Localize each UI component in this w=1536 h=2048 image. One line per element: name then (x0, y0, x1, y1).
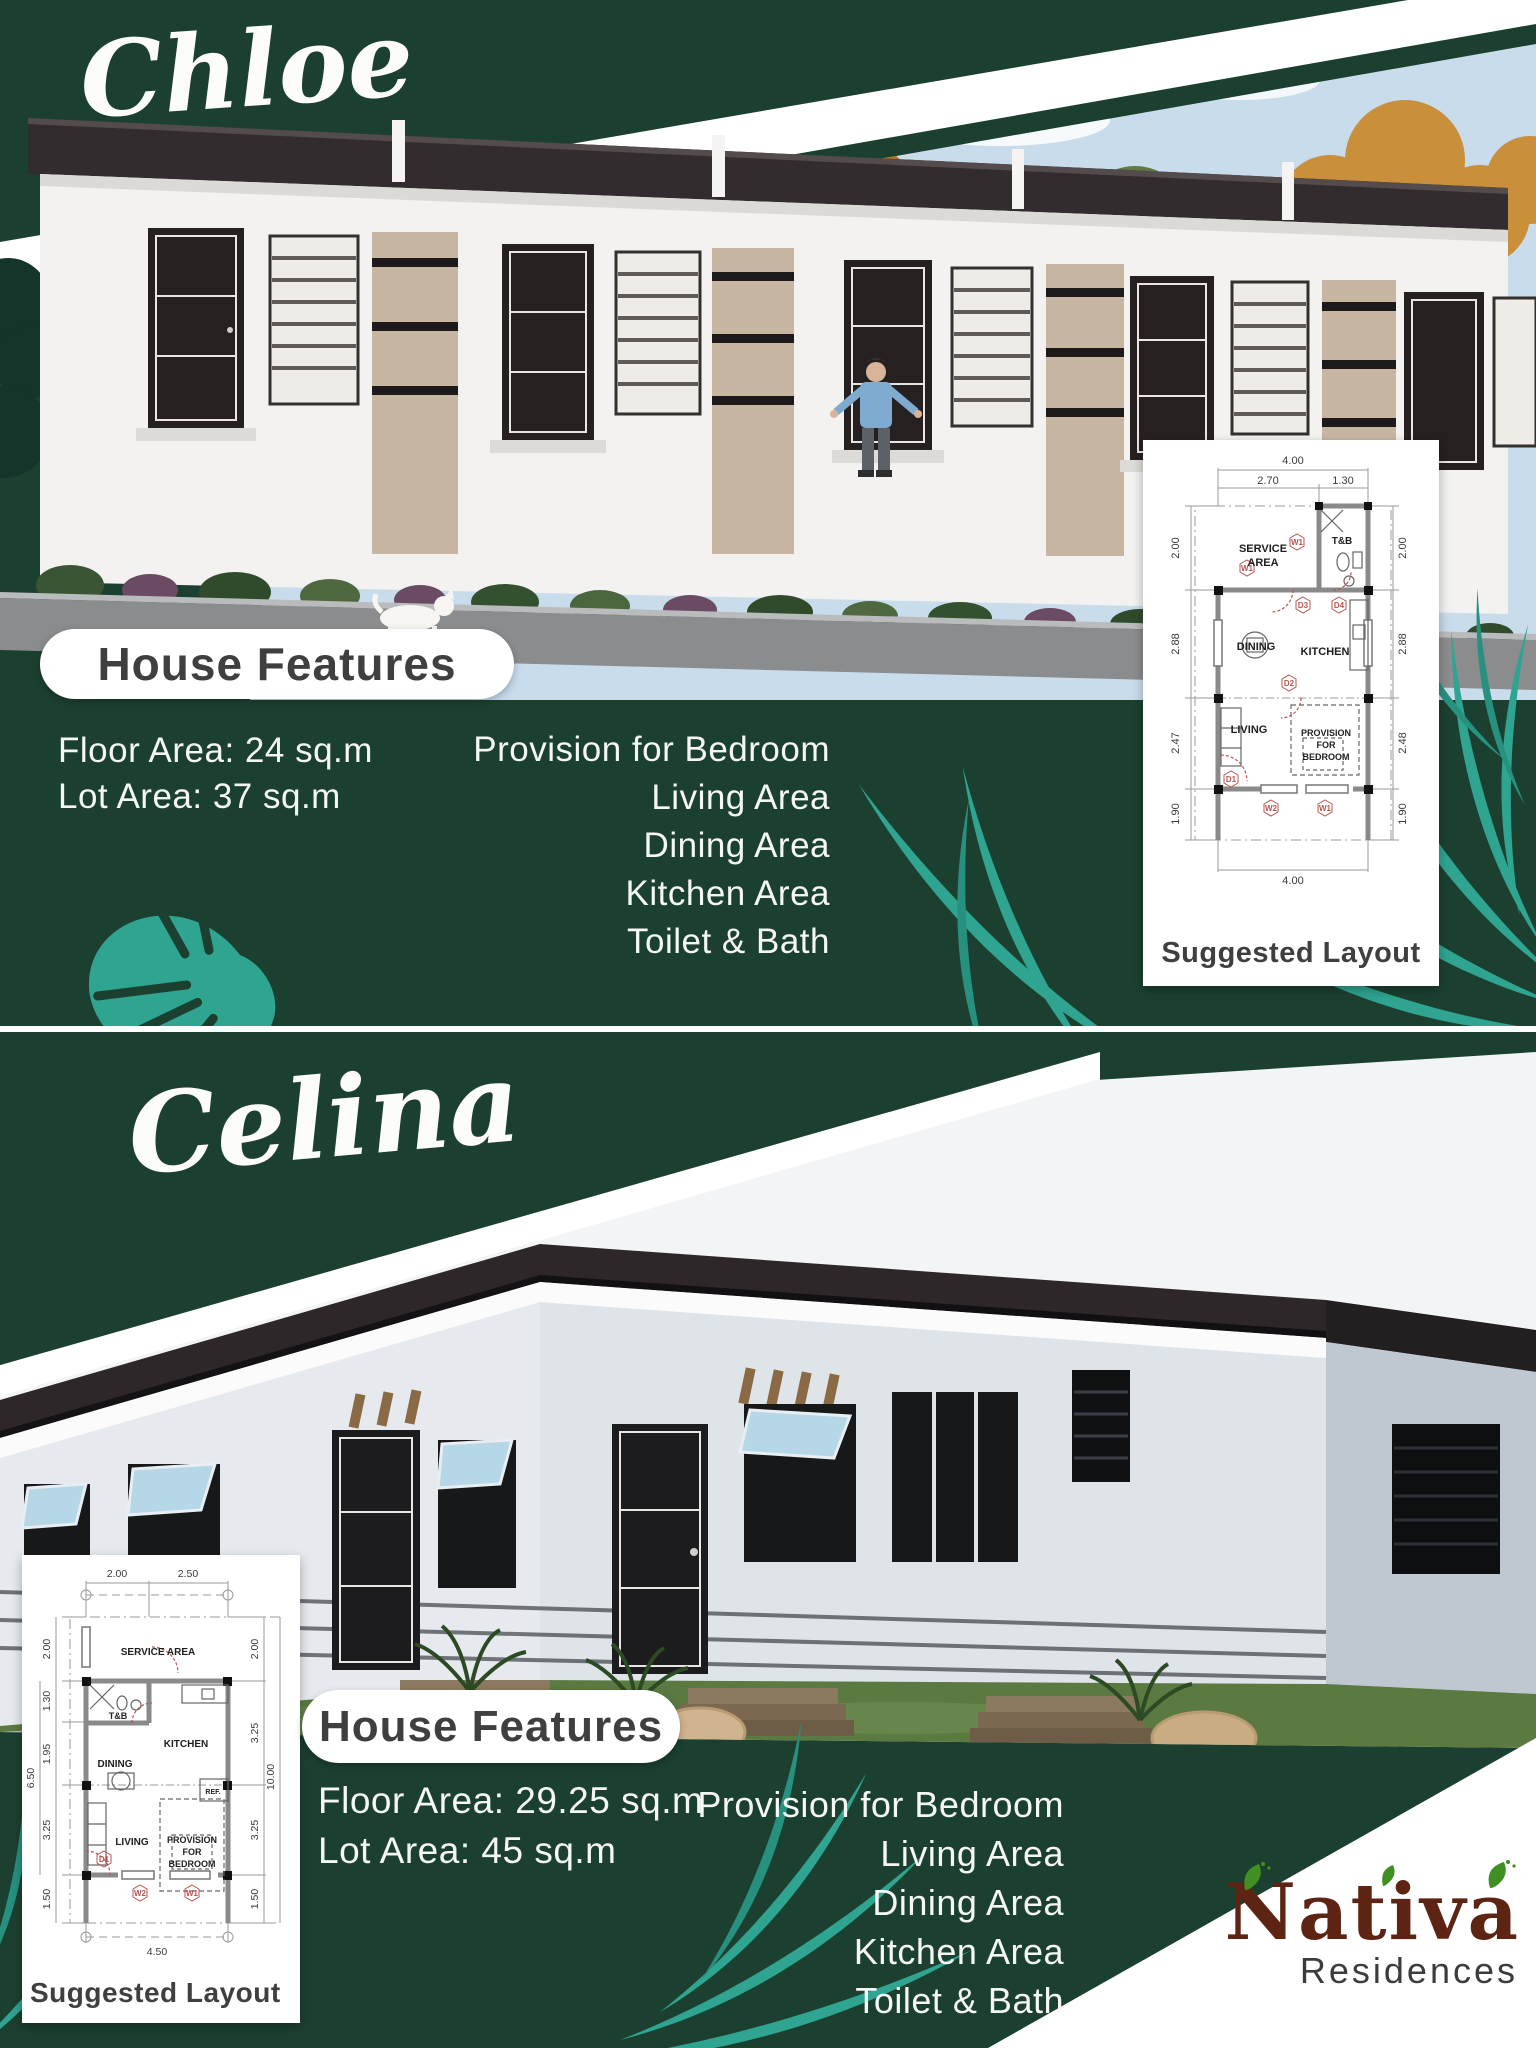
celina-title: Celina (124, 1047, 524, 1191)
leaf-icon (1239, 1860, 1283, 1894)
celina-floor-area: Floor Area: 29.25 sq.m (318, 1776, 703, 1826)
leaf-icon (1375, 1862, 1411, 1890)
svg-text:T&B: T&B (109, 1711, 128, 1721)
svg-text:D3: D3 (1298, 601, 1309, 610)
dimension-labels: 2.00 2.50 2.00 1.30 1.95 6.50 3.25 1.50 … (25, 1568, 277, 1958)
svg-text:2.88: 2.88 (1397, 633, 1409, 654)
svg-text:4.00: 4.00 (1282, 875, 1303, 887)
svg-text:4.50: 4.50 (147, 1946, 168, 1958)
celina-features-heading: House Features (319, 1702, 663, 1752)
provision-item: Dining Area (420, 822, 830, 870)
svg-text:BEDROOM: BEDROOM (1303, 752, 1350, 762)
svg-text:2.50: 2.50 (178, 1568, 199, 1580)
celina-features-pill: House Features (302, 1690, 680, 1763)
chloe-features-heading: House Features (97, 637, 456, 691)
svg-text:T&B: T&B (1332, 536, 1353, 547)
svg-text:1.90: 1.90 (1397, 803, 1409, 824)
svg-text:2.70: 2.70 (1257, 475, 1278, 487)
walls (86, 1681, 228, 1923)
svg-text:1.30: 1.30 (1332, 475, 1353, 487)
svg-text:SERVICE: SERVICE (1239, 543, 1287, 555)
svg-text:W1: W1 (186, 1889, 199, 1898)
svg-text:3.25: 3.25 (41, 1820, 53, 1841)
chloe-provisions: Provision for Bedroom Living Area Dining… (420, 726, 830, 966)
provision-item: Kitchen Area (660, 1927, 1064, 1976)
svg-text:W1: W1 (1291, 538, 1304, 547)
svg-text:LIVING: LIVING (115, 1837, 149, 1848)
celina-lot-area: Lot Area: 45 sq.m (318, 1826, 703, 1876)
celina-section: Celina (0, 1032, 1536, 2048)
svg-text:1.90: 1.90 (1170, 803, 1182, 824)
provision-item: Provision for Bedroom (660, 1780, 1064, 1829)
svg-text:PROVISION: PROVISION (167, 1835, 217, 1845)
svg-text:SERVICE AREA: SERVICE AREA (121, 1647, 195, 1658)
svg-text:1.50: 1.50 (249, 1889, 261, 1910)
svg-text:W2: W2 (1265, 804, 1278, 813)
svg-text:2.00: 2.00 (107, 1568, 128, 1580)
svg-text:DINING: DINING (1237, 641, 1276, 653)
ref-label: REF. (205, 1789, 220, 1796)
svg-text:FOR: FOR (183, 1847, 202, 1857)
provision-item: Living Area (420, 774, 830, 822)
flyer-poster: Chloe House Features Floor Area: 24 sq.m… (0, 0, 1536, 2048)
chloe-floor-area: Floor Area: 24 sq.m (58, 728, 373, 774)
svg-text:D2: D2 (1284, 679, 1295, 688)
dimension-labels: 4.00 2.70 1.30 2.00 2.88 2.47 1.90 2.00 … (1170, 455, 1409, 887)
svg-text:AREA: AREA (1247, 557, 1278, 569)
chloe-title: Chloe (77, 6, 417, 133)
svg-text:2.00: 2.00 (249, 1639, 261, 1660)
chloe-areas: Floor Area: 24 sq.m Lot Area: 37 sq.m (58, 728, 373, 820)
celina-plan-card: 2.00 2.50 2.00 1.30 1.95 6.50 3.25 1.50 … (22, 1555, 300, 2023)
svg-text:4.00: 4.00 (1282, 455, 1303, 467)
celina-provisions: Provision for Bedroom Living Area Dining… (660, 1780, 1064, 2025)
dimension-lines (40, 1581, 280, 1943)
svg-text:1.50: 1.50 (41, 1889, 53, 1910)
svg-text:D1: D1 (1226, 775, 1237, 784)
provision-item: Toilet & Bath (420, 918, 830, 966)
chloe-floor-plan: 4.00 2.70 1.30 2.00 2.88 2.47 1.90 2.00 … (1143, 440, 1439, 910)
svg-text:1.30: 1.30 (41, 1691, 53, 1712)
celina-floor-plan: 2.00 2.50 2.00 1.30 1.95 6.50 3.25 1.50 … (22, 1555, 300, 1963)
provision-item: Toilet & Bath (660, 1976, 1064, 2025)
chloe-features-pill: House Features (40, 629, 514, 699)
svg-text:2.00: 2.00 (1170, 537, 1182, 558)
svg-text:W2: W2 (134, 1889, 147, 1898)
svg-text:FOR: FOR (1317, 740, 1336, 750)
chloe-plan-card: 4.00 2.70 1.30 2.00 2.88 2.47 1.90 2.00 … (1143, 440, 1439, 986)
plan-markers: W1 W1 D3 D4 D2 D1 W2 W1 (1224, 534, 1346, 816)
chloe-lot-area: Lot Area: 37 sq.m (58, 774, 373, 820)
svg-text:W1: W1 (1319, 804, 1332, 813)
svg-text:10.00: 10.00 (265, 1764, 277, 1790)
svg-text:KITCHEN: KITCHEN (164, 1739, 208, 1750)
svg-text:2.48: 2.48 (1397, 732, 1409, 753)
svg-text:6.50: 6.50 (25, 1768, 37, 1789)
svg-text:LIVING: LIVING (1231, 724, 1268, 736)
svg-text:D4: D4 (1334, 601, 1345, 610)
svg-text:D1: D1 (99, 1855, 110, 1864)
chloe-layout-caption: Suggested Layout (1143, 937, 1439, 970)
svg-text:PROVISION: PROVISION (1301, 728, 1351, 738)
provision-item: Living Area (660, 1829, 1064, 1878)
svg-text:2.88: 2.88 (1170, 633, 1182, 654)
chloe-section: Chloe House Features Floor Area: 24 sq.m… (0, 0, 1536, 1032)
svg-text:2.00: 2.00 (1397, 537, 1409, 558)
svg-text:BEDROOM: BEDROOM (169, 1859, 216, 1869)
svg-text:3.25: 3.25 (249, 1820, 261, 1841)
provision-item: Dining Area (660, 1878, 1064, 1927)
svg-text:2.47: 2.47 (1170, 732, 1182, 753)
provision-item: Provision for Bedroom (420, 726, 830, 774)
celina-areas: Floor Area: 29.25 sq.m Lot Area: 45 sq.m (318, 1776, 703, 1876)
svg-text:2.00: 2.00 (41, 1639, 53, 1660)
svg-text:1.95: 1.95 (41, 1744, 53, 1765)
brand-logo: Nativa Residences (1190, 1878, 1520, 1992)
provision-item: Kitchen Area (420, 870, 830, 918)
celina-layout-caption: Suggested Layout (30, 1977, 281, 2009)
svg-text:KITCHEN: KITCHEN (1301, 646, 1350, 658)
svg-text:DINING: DINING (98, 1759, 133, 1770)
svg-text:3.25: 3.25 (249, 1723, 261, 1744)
leaf-icon (1480, 1858, 1524, 1892)
